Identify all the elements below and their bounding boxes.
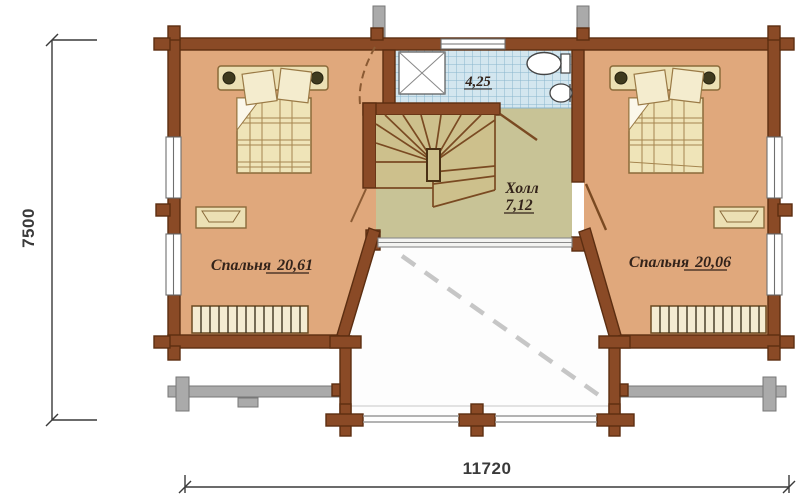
- beam-cross-left: [176, 377, 189, 411]
- log-end: [371, 28, 383, 40]
- floor-plan-drawing: Спальня20,61 Спальня20,06 Холл 7,12 4,25…: [0, 0, 800, 501]
- hall-wall-right-upper: [572, 50, 584, 182]
- balcony-void: [344, 246, 614, 420]
- wall-left-upper: [168, 38, 180, 137]
- window-left-1: [166, 137, 181, 198]
- wall-bottom-right: [612, 335, 780, 348]
- floor-plan-page: Спальня20,61 Спальня20,06 Холл 7,12 4,25…: [0, 0, 800, 501]
- radiator-left-icon: [192, 306, 308, 333]
- log-end: [154, 38, 170, 50]
- log-end: [330, 336, 361, 348]
- dresser-left-icon: [196, 207, 246, 228]
- dresser-right-icon: [714, 207, 764, 228]
- bathroom-wall-left: [383, 50, 395, 105]
- railing-post: [597, 414, 634, 426]
- window-right-1: [767, 137, 782, 198]
- railing-post: [459, 414, 495, 426]
- bathroom-area-label: 4,25: [464, 74, 490, 90]
- shower-icon: [399, 52, 445, 94]
- log-end: [778, 204, 792, 216]
- wall-right-upper: [768, 38, 780, 137]
- sink-icon: [550, 84, 572, 102]
- pillow: [277, 68, 312, 103]
- toilet-icon: [527, 53, 570, 75]
- dimension-height-value: 7500: [19, 208, 38, 248]
- log-end: [780, 336, 794, 348]
- stair-newel-post: [427, 149, 440, 181]
- hall-label: Холл: [504, 180, 538, 197]
- hall-area-label: 7,12: [505, 197, 532, 214]
- log-end: [156, 204, 170, 216]
- log-end: [577, 28, 589, 40]
- radiator-right-icon: [651, 306, 766, 333]
- log-end: [599, 336, 630, 348]
- stairs-wall-west: [363, 103, 376, 188]
- pillow: [242, 70, 277, 105]
- balcony-floor: [344, 246, 614, 420]
- bathroom-wall-bottom: [363, 103, 500, 115]
- log-end: [332, 384, 340, 396]
- window-right-2: [767, 234, 782, 295]
- window-bathroom: [441, 39, 505, 49]
- log-end: [620, 384, 628, 396]
- window-left-2: [166, 234, 181, 295]
- bedroom-right-label: Спальня20,06: [629, 254, 731, 271]
- beam-cross-right: [763, 377, 776, 411]
- roof-beam-right: [612, 386, 786, 397]
- balcony-window-band: [378, 238, 572, 247]
- dimension-width-value: 11720: [463, 459, 512, 478]
- bedroom-left-label: Спальня20,61: [211, 257, 313, 274]
- log-end: [154, 336, 170, 348]
- roof-beam-left: [168, 386, 342, 397]
- pillow: [634, 70, 669, 105]
- beam-stub-left: [238, 398, 258, 407]
- log-end: [780, 38, 794, 50]
- log-end: [768, 26, 780, 40]
- railing-post: [326, 414, 363, 426]
- log-end: [768, 346, 780, 360]
- pillow: [669, 68, 704, 103]
- wall-bottom-left: [168, 335, 344, 348]
